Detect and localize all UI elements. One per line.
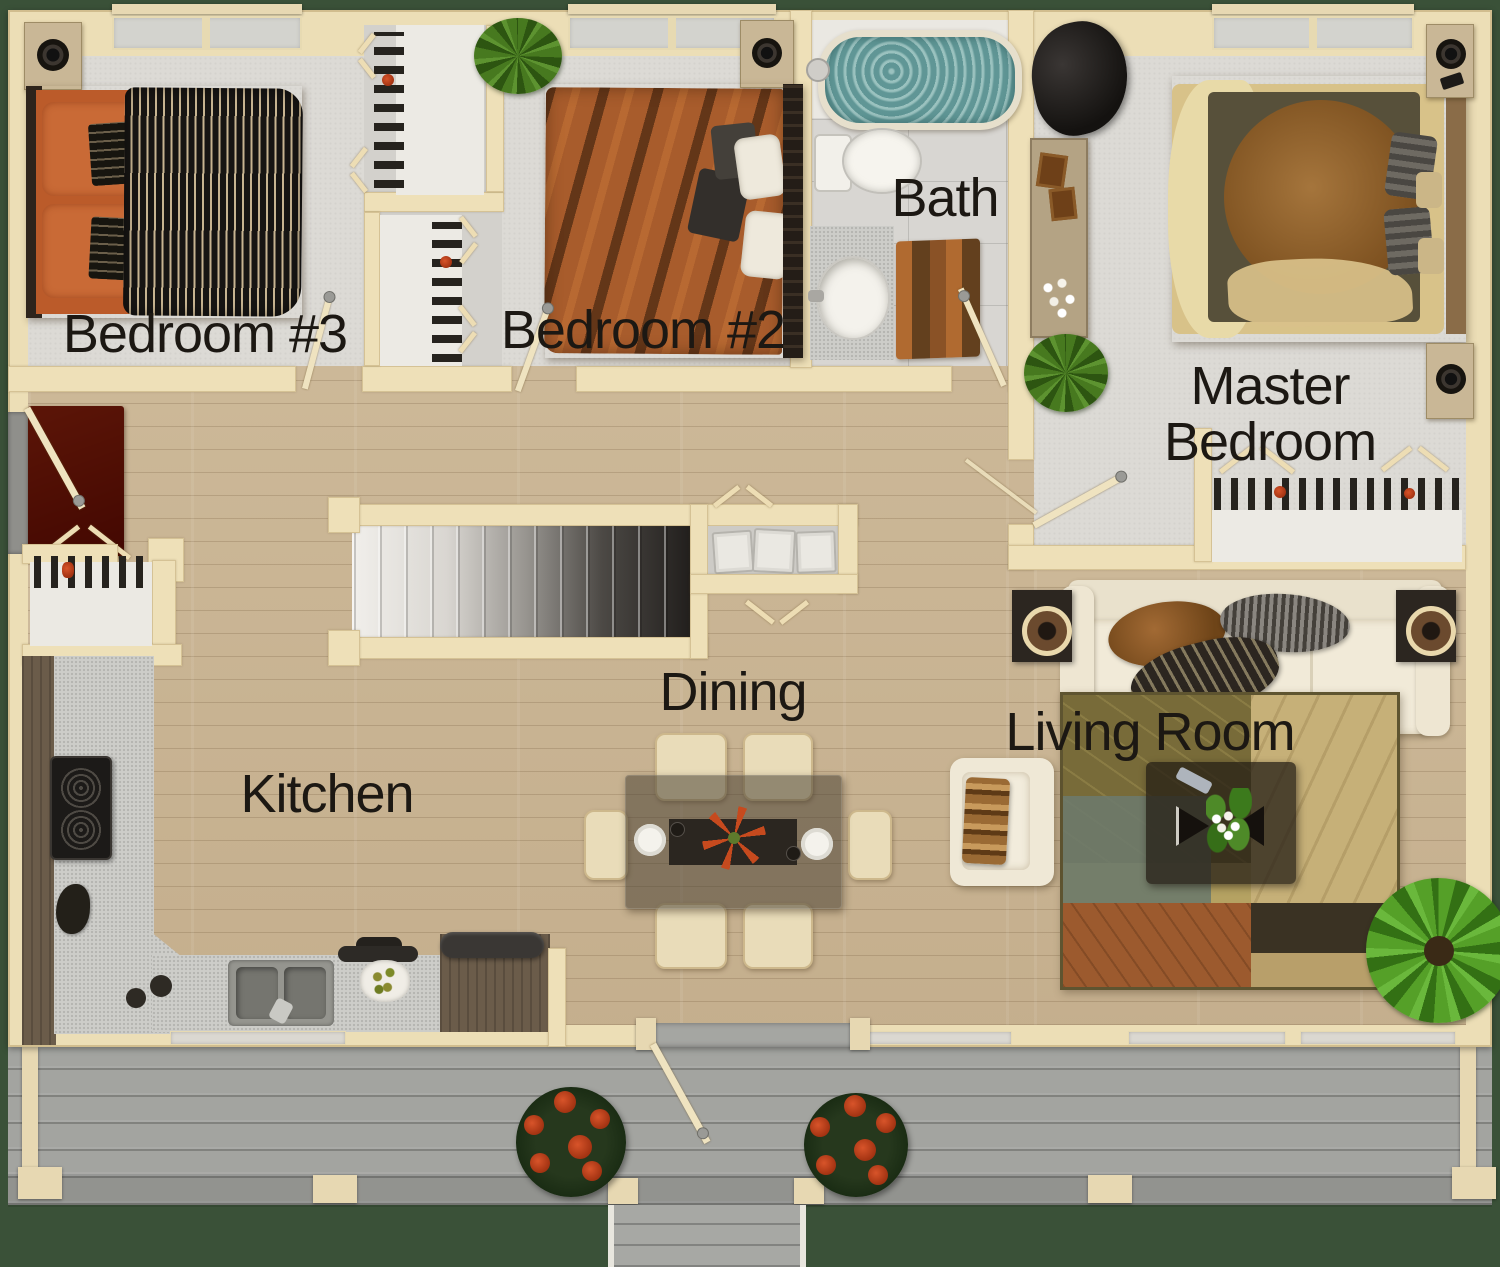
bed-pillow-tan <box>1416 172 1442 208</box>
hall-door-swing <box>716 476 770 508</box>
window-sill <box>112 4 302 14</box>
flower-planter <box>516 1087 626 1197</box>
orange-shoe <box>1274 486 1286 498</box>
entry-door-recess <box>8 412 30 554</box>
nightstand-speaker <box>1426 24 1474 98</box>
closet-shoes <box>1214 478 1460 510</box>
burner <box>60 810 102 850</box>
nightstand-speaker <box>1426 343 1474 419</box>
place-setting-plate <box>801 828 833 860</box>
cup <box>786 846 801 861</box>
phone <box>1440 72 1465 90</box>
window-mullion <box>668 16 676 50</box>
window <box>1300 1031 1456 1045</box>
window <box>170 1031 346 1045</box>
closet-shoes <box>374 32 404 188</box>
front-steps <box>608 1205 806 1267</box>
room-label-line: Bedroom <box>1130 414 1410 470</box>
flower-planter <box>804 1093 908 1197</box>
wall <box>576 366 952 392</box>
dining-chair <box>848 810 892 880</box>
storage-basket <box>712 530 755 575</box>
red-flower <box>816 1155 836 1175</box>
bifold-door-leaf <box>358 33 376 54</box>
red-flower <box>568 1135 592 1159</box>
master-closet-shelf <box>1212 510 1462 562</box>
dresser <box>1030 138 1088 338</box>
end-table <box>1396 590 1456 662</box>
armchair-blanket <box>962 777 1010 865</box>
bifold-door-leaf <box>458 331 477 353</box>
deck-post <box>18 1167 62 1199</box>
tub-faucet <box>806 58 830 82</box>
closet-items <box>34 556 146 588</box>
press-handle <box>356 937 402 946</box>
bed-pillow <box>733 133 787 201</box>
counter-knob <box>150 975 172 997</box>
master-bed <box>1172 76 1466 342</box>
closet-divider <box>364 192 504 212</box>
dining-chair <box>584 810 628 880</box>
dining-table <box>625 775 842 909</box>
room-label-living-room: Living Room <box>990 704 1310 760</box>
red-flower <box>582 1161 602 1181</box>
speaker-cabinet <box>24 22 82 90</box>
bath-sink <box>816 256 890 340</box>
bifold-door-leaf <box>459 216 478 238</box>
bifold-door-leaf <box>459 242 478 264</box>
potted-plant <box>1024 334 1108 412</box>
window-mullion <box>202 16 210 50</box>
window <box>1212 16 1414 50</box>
range-stove <box>50 756 112 860</box>
speaker-icon <box>1436 39 1466 69</box>
cup <box>670 822 685 837</box>
orange-item <box>62 562 74 578</box>
newel-post <box>328 630 360 666</box>
flower-vase <box>1038 274 1078 320</box>
counter-knob <box>126 988 146 1008</box>
deck-post <box>608 1178 638 1204</box>
red-flower <box>524 1115 544 1135</box>
storage-basket <box>795 530 836 573</box>
pantry-wall-bottom <box>690 574 858 594</box>
red-flower <box>844 1095 866 1117</box>
picture-frame <box>1036 152 1068 190</box>
orange-shoe <box>382 74 394 86</box>
speaker-icon <box>752 38 782 68</box>
window <box>112 16 302 50</box>
place-setting-plate <box>634 824 666 856</box>
bifold-door-leaf <box>350 172 368 193</box>
deck-rail-left <box>22 1047 38 1175</box>
room-label-line: Master <box>1130 358 1410 414</box>
sink-faucet <box>808 290 824 302</box>
speaker-icon <box>1436 364 1466 394</box>
hall-door-swing <box>748 600 806 640</box>
floor-plan-canvas: Bedroom #3 Bedroom #2 Bath Master Bedroo… <box>0 0 1500 1267</box>
staircase <box>352 526 690 637</box>
bifold-door-leaf <box>358 58 376 79</box>
door-swing-leaf <box>780 600 810 625</box>
bed-duvet-striped <box>123 87 303 317</box>
wall <box>8 366 296 392</box>
decor-triangle <box>1176 806 1209 846</box>
bifold-door-leaf <box>458 305 477 327</box>
dining-chair <box>655 903 727 969</box>
table-lamp <box>1406 606 1456 656</box>
palm-plant <box>1366 878 1500 1023</box>
orange-shoe <box>440 256 452 268</box>
table-lamp <box>1022 606 1072 656</box>
white-flowers <box>1208 810 1242 840</box>
room-label-bedroom3: Bedroom #3 <box>40 306 370 362</box>
door-swing-leaf <box>713 485 741 508</box>
deck-post <box>1088 1175 1132 1203</box>
newel-post <box>328 497 360 533</box>
armchair <box>950 758 1054 886</box>
window <box>1128 1031 1286 1045</box>
storage-basket <box>752 528 796 574</box>
deck-post <box>313 1175 357 1203</box>
speaker-icon <box>37 39 69 71</box>
door-jamb <box>850 1018 870 1050</box>
bifold-closet-door <box>328 150 368 190</box>
red-flower <box>868 1165 888 1185</box>
room-label-bath: Bath <box>870 170 1020 226</box>
stair-rail-bottom <box>334 637 708 659</box>
bifold-closet-door <box>459 219 511 261</box>
deck-rail-right <box>1460 1047 1476 1175</box>
coffee-table <box>1146 762 1296 884</box>
window <box>862 1031 1012 1045</box>
deck-post <box>1452 1167 1496 1199</box>
room-label-dining: Dining <box>628 664 838 720</box>
door-swing-leaf <box>745 485 773 508</box>
step-rail <box>800 1205 806 1267</box>
picture-frame <box>1048 187 1077 222</box>
food-plate <box>360 960 410 1002</box>
wall <box>362 366 512 392</box>
rug-rust-block <box>1063 903 1251 987</box>
front-door-threshold <box>645 1023 857 1047</box>
potted-plant <box>474 18 562 94</box>
red-flower <box>554 1091 576 1113</box>
bifold-door-leaf <box>1418 446 1449 472</box>
centerpiece-greens <box>728 832 740 844</box>
palm-center <box>1424 936 1454 966</box>
deck-fascia <box>8 1172 1492 1207</box>
red-flower <box>854 1139 876 1161</box>
dining-chair <box>743 903 813 969</box>
room-label-bedroom2: Bedroom #2 <box>478 302 808 358</box>
window-sill <box>568 4 776 14</box>
pantry-interior <box>708 526 838 574</box>
deck <box>8 1045 1492 1205</box>
door-swing-leaf <box>745 600 775 625</box>
red-flower <box>810 1117 830 1137</box>
room-label-master-bedroom: Master Bedroom <box>1130 358 1410 470</box>
bifold-closet-door <box>320 36 376 76</box>
burner <box>60 768 102 808</box>
stair-rail-top <box>334 504 858 526</box>
bathtub <box>818 30 1022 130</box>
orange-shoe <box>1404 488 1415 499</box>
nightstand-speaker <box>740 20 794 88</box>
main-living-floor <box>28 366 1034 1025</box>
bedroom3-bed <box>26 86 302 318</box>
room-label-kitchen: Kitchen <box>222 766 432 822</box>
kitchen-sink <box>228 960 334 1026</box>
counter-end-post <box>548 948 566 1047</box>
griddle <box>440 932 544 958</box>
red-flower <box>530 1153 550 1173</box>
red-flower <box>590 1109 610 1129</box>
end-table <box>1012 590 1072 662</box>
bed-pillow-tan <box>1418 238 1444 274</box>
red-flower <box>876 1113 896 1133</box>
bedroom3-closet-interior <box>396 25 484 195</box>
step-rail <box>608 1205 614 1267</box>
window-mullion <box>1309 16 1317 50</box>
flower-centerpiece <box>702 806 766 870</box>
bed-headboard <box>1446 82 1466 334</box>
bifold-door-leaf <box>350 147 368 168</box>
window-sill <box>1212 4 1414 14</box>
